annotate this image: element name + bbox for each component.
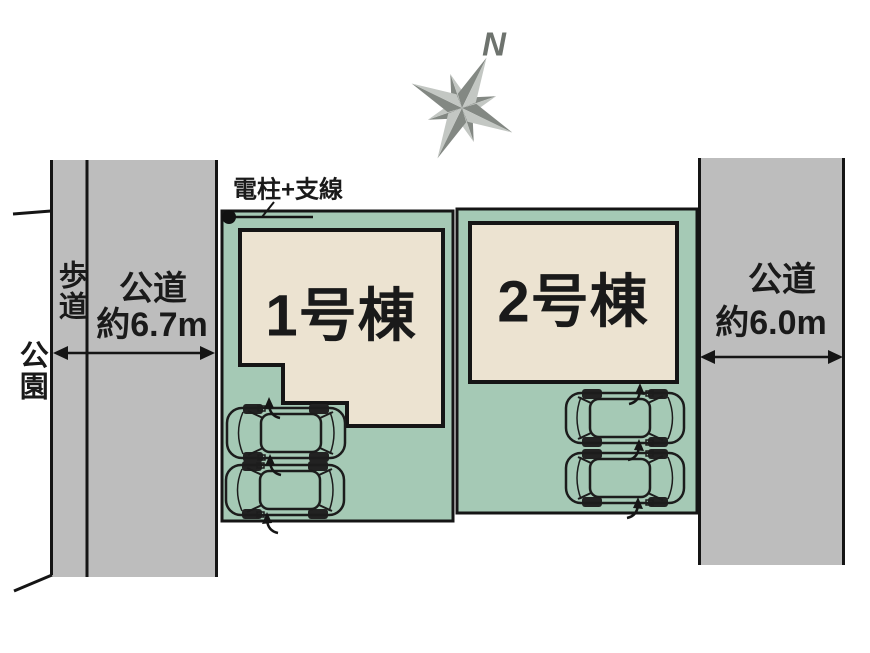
sidewalk-label: 歩道	[55, 260, 85, 322]
utility-pole-label: 電柱+支線	[233, 177, 343, 202]
site-plan: N 電柱+支線 歩道 公道 約6.7m 公園 1号棟 2号棟 公道 約6.0m	[0, 0, 870, 653]
right-road-label: 公道	[748, 263, 816, 299]
building-2-label: 2号棟	[497, 273, 648, 334]
right-road	[698, 158, 845, 565]
right-road-width-label: 約6.0m	[715, 306, 827, 342]
compass-rose-icon	[387, 33, 537, 183]
park-label: 公園	[16, 340, 46, 402]
compass-north-label: N	[482, 28, 506, 63]
park-boundary-top	[13, 211, 51, 214]
left-road-width-label: 約6.7m	[96, 308, 208, 344]
building-1-label: 1号棟	[265, 287, 416, 348]
left-road-label: 公道	[119, 272, 187, 308]
park-boundary-bottom	[14, 575, 52, 591]
